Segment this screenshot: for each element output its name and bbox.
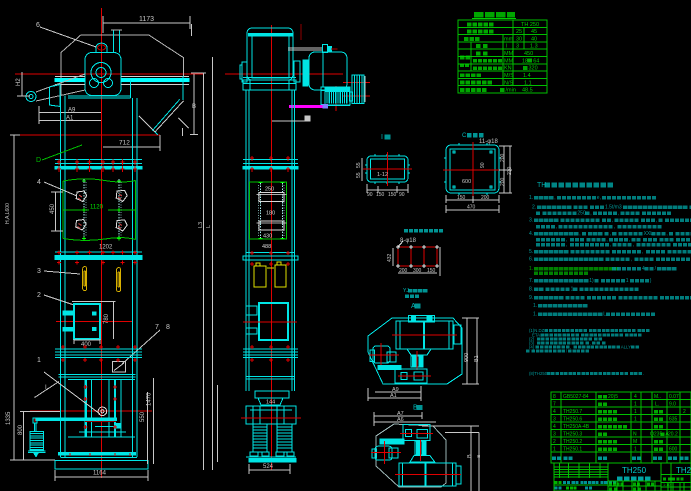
svg-text:1202: 1202 <box>99 245 113 251</box>
svg-text:,: , <box>579 231 580 237</box>
svg-text:l: l <box>506 44 507 50</box>
svg-text:8.: 8. <box>529 287 533 293</box>
svg-text:200: 200 <box>481 195 490 201</box>
svg-text:430: 430 <box>263 234 272 240</box>
svg-text:TH250.1: TH250.1 <box>563 447 582 453</box>
svg-text:20)5: 20)5 <box>608 394 618 400</box>
svg-text:2: 2 <box>683 409 686 415</box>
svg-text:3.: 3. <box>529 218 533 224</box>
svg-text:4.: 4. <box>529 231 533 237</box>
svg-text:A1: A1 <box>390 393 397 399</box>
svg-text:/min: /min <box>506 88 516 94</box>
svg-text:200: 200 <box>399 268 408 274</box>
svg-text:,: , <box>556 224 557 230</box>
svg-text:4: 4 <box>553 424 556 430</box>
svg-text:40: 40 <box>531 37 537 43</box>
svg-text:20.2: 20.2 <box>668 432 678 438</box>
svg-text:TH 250: TH 250 <box>521 22 539 28</box>
svg-text:1: 1 <box>37 357 41 364</box>
svg-text:,: , <box>610 242 611 248</box>
svg-text:I: I <box>381 134 383 141</box>
svg-text:D: D <box>36 157 41 164</box>
svg-text:6.: 6. <box>529 257 533 263</box>
svg-text:TH250: TH250 <box>622 466 647 475</box>
svg-text:TH250.3: TH250.3 <box>563 432 582 438</box>
svg-text:1: 1 <box>634 447 637 453</box>
svg-text:KN: KN <box>504 66 512 72</box>
svg-text:1: 1 <box>634 409 637 415</box>
svg-text:4: 4 <box>37 179 41 186</box>
svg-text:450: 450 <box>524 51 533 57</box>
svg-text:M: M <box>633 439 637 445</box>
svg-text:MM: MM <box>504 51 514 57</box>
svg-text:4: 4 <box>553 409 556 415</box>
svg-text:MM: MM <box>504 58 514 64</box>
svg-text:9.: 9. <box>529 295 533 301</box>
svg-text:30: 30 <box>516 37 522 43</box>
svg-text:TH250.2: TH250.2 <box>563 439 582 445</box>
svg-text:,: , <box>590 211 591 217</box>
svg-text:.: . <box>643 371 644 376</box>
svg-text:7: 7 <box>155 324 159 331</box>
svg-text:250: 250 <box>265 187 274 193</box>
svg-text:1470: 1470 <box>147 392 153 406</box>
svg-text:0.07: 0.07 <box>669 394 679 400</box>
svg-text:600: 600 <box>462 179 471 185</box>
svg-text:,: , <box>570 345 571 350</box>
svg-text:180: 180 <box>266 211 275 217</box>
svg-text:200: 200 <box>500 153 506 162</box>
svg-text:,: , <box>554 195 555 201</box>
svg-text:1.: 1. <box>533 312 537 318</box>
svg-text:,: , <box>629 237 630 243</box>
svg-text:M..: M.. <box>654 394 661 400</box>
svg-text:1): 1) <box>589 278 594 284</box>
svg-text:1164: 1164 <box>93 471 107 477</box>
svg-text:5.: 5. <box>529 249 533 255</box>
svg-text:18: 18 <box>522 58 528 64</box>
svg-text:230: 230 <box>507 166 513 175</box>
svg-text:1.: 1. <box>533 303 537 309</box>
svg-text:150: 150 <box>457 195 466 201</box>
svg-text:524: 524 <box>263 464 274 470</box>
svg-text:3: 3 <box>553 417 556 423</box>
svg-text:,: , <box>666 231 667 237</box>
svg-text:(8)TH250: (8)TH250 <box>529 371 548 376</box>
svg-text:(4): (4) <box>529 345 535 350</box>
svg-text:600: 600 <box>669 447 678 453</box>
svg-text:,: , <box>618 211 619 217</box>
svg-text:1: 1 <box>626 278 629 284</box>
svg-text:A9: A9 <box>68 107 76 113</box>
svg-text:1: 1 <box>634 417 637 423</box>
svg-text:M/S: M/S <box>504 73 514 79</box>
svg-text:712: 712 <box>119 140 130 147</box>
svg-text:3: 3 <box>516 44 519 50</box>
svg-text:90: 90 <box>480 162 486 168</box>
svg-text:L3: L3 <box>198 222 204 228</box>
svg-text:300: 300 <box>413 268 422 274</box>
svg-text:2: 2 <box>553 439 556 445</box>
svg-text:H,A,L600: H,A,L600 <box>5 203 11 224</box>
svg-text:800: 800 <box>18 424 24 435</box>
svg-text:200: 200 <box>500 177 506 186</box>
svg-text:C: C <box>462 133 467 139</box>
svg-text:4: 4 <box>634 394 637 400</box>
svg-text:1.1: 1.1 <box>524 80 532 86</box>
svg-text:25: 25 <box>516 29 522 35</box>
svg-text:150: 150 <box>427 268 436 274</box>
svg-text:1:10: 1:10 <box>663 483 670 487</box>
svg-text:550: 550 <box>140 411 146 422</box>
svg-text:1120: 1120 <box>90 205 104 211</box>
svg-text:635: 635 <box>669 417 678 423</box>
svg-text:ALLY: ALLY <box>621 345 631 350</box>
svg-text:1.5t/m3: 1.5t/m3 <box>605 205 622 211</box>
svg-text:,: , <box>614 224 615 230</box>
svg-text:150: 150 <box>388 192 397 198</box>
svg-text:B1: B1 <box>474 355 480 362</box>
svg-text:TH250.7: TH250.7 <box>563 409 582 415</box>
svg-text:TH250.6: TH250.6 <box>563 417 582 423</box>
svg-text:,: , <box>612 218 613 224</box>
svg-text:L.: L. <box>655 402 659 408</box>
svg-text:A1: A1 <box>66 115 74 121</box>
svg-text:GB5027-84: GB5027-84 <box>563 394 589 400</box>
svg-text:45: 45 <box>531 29 537 35</box>
svg-text:L: L <box>206 225 212 228</box>
svg-text:1-12: 1-12 <box>377 172 388 178</box>
svg-text:7: 7 <box>553 402 556 408</box>
svg-text:1173: 1173 <box>139 16 154 23</box>
svg-text:780: 780 <box>104 313 110 324</box>
svg-text:A6: A6 <box>397 417 404 423</box>
svg-text:48.5: 48.5 <box>522 88 533 94</box>
svg-text:432: 432 <box>387 253 393 262</box>
svg-text:6: 6 <box>36 22 40 29</box>
svg-text:7.: 7. <box>529 278 533 284</box>
svg-text:N/S: N/S <box>504 80 514 86</box>
svg-text:8: 8 <box>166 324 170 331</box>
svg-text:90: 90 <box>399 192 405 198</box>
svg-text:mm: mm <box>504 37 514 43</box>
svg-text:4: 4 <box>642 266 645 272</box>
svg-text:150: 150 <box>376 192 385 198</box>
svg-text:1.: 1. <box>529 195 533 201</box>
svg-text:488: 488 <box>262 244 271 250</box>
svg-text:11-φ18: 11-φ18 <box>479 139 498 145</box>
svg-text:450: 450 <box>50 203 56 214</box>
svg-text:90: 90 <box>367 192 373 198</box>
svg-text:8: 8 <box>553 394 556 400</box>
svg-text:1: 1 <box>553 447 556 453</box>
svg-text:TH2: TH2 <box>676 466 691 475</box>
svg-text:1.3: 1.3 <box>530 44 538 50</box>
svg-text:3: 3 <box>37 268 41 275</box>
svg-text:,: , <box>656 218 657 224</box>
svg-text:64: 64 <box>533 58 539 64</box>
svg-text:2.: 2. <box>532 205 536 211</box>
svg-text:B: B <box>467 454 473 458</box>
svg-text:1: 1 <box>571 287 574 293</box>
svg-text:,: , <box>610 231 611 237</box>
svg-text:e,: e, <box>597 195 601 201</box>
svg-text:1: 1 <box>634 402 637 408</box>
svg-text:1335: 1335 <box>6 411 12 425</box>
svg-text:,: , <box>631 257 632 263</box>
svg-text:1.4: 1.4 <box>523 73 531 79</box>
svg-text:.: . <box>590 341 591 346</box>
svg-text:144: 144 <box>266 400 275 406</box>
svg-text:55: 55 <box>356 162 362 168</box>
svg-text:320: 320 <box>529 66 538 72</box>
svg-text:,: , <box>566 242 567 248</box>
svg-text:L: L <box>603 312 606 318</box>
svg-text:1.: 1. <box>529 266 533 272</box>
svg-text:250: 250 <box>577 211 586 217</box>
svg-text:TH250A-4B: TH250A-4B <box>563 424 590 430</box>
svg-text:,: , <box>642 249 643 255</box>
svg-text:,: , <box>633 242 634 248</box>
svg-text:900: 900 <box>464 353 470 362</box>
svg-text:H2: H2 <box>16 78 22 86</box>
svg-text:2: 2 <box>37 292 41 299</box>
svg-text:9.0: 9.0 <box>669 402 676 408</box>
svg-text:470: 470 <box>467 205 476 211</box>
svg-text:,: , <box>606 237 607 243</box>
svg-text:55: 55 <box>356 172 362 178</box>
svg-text:3: 3 <box>553 432 556 438</box>
svg-text:N: N <box>633 432 637 438</box>
